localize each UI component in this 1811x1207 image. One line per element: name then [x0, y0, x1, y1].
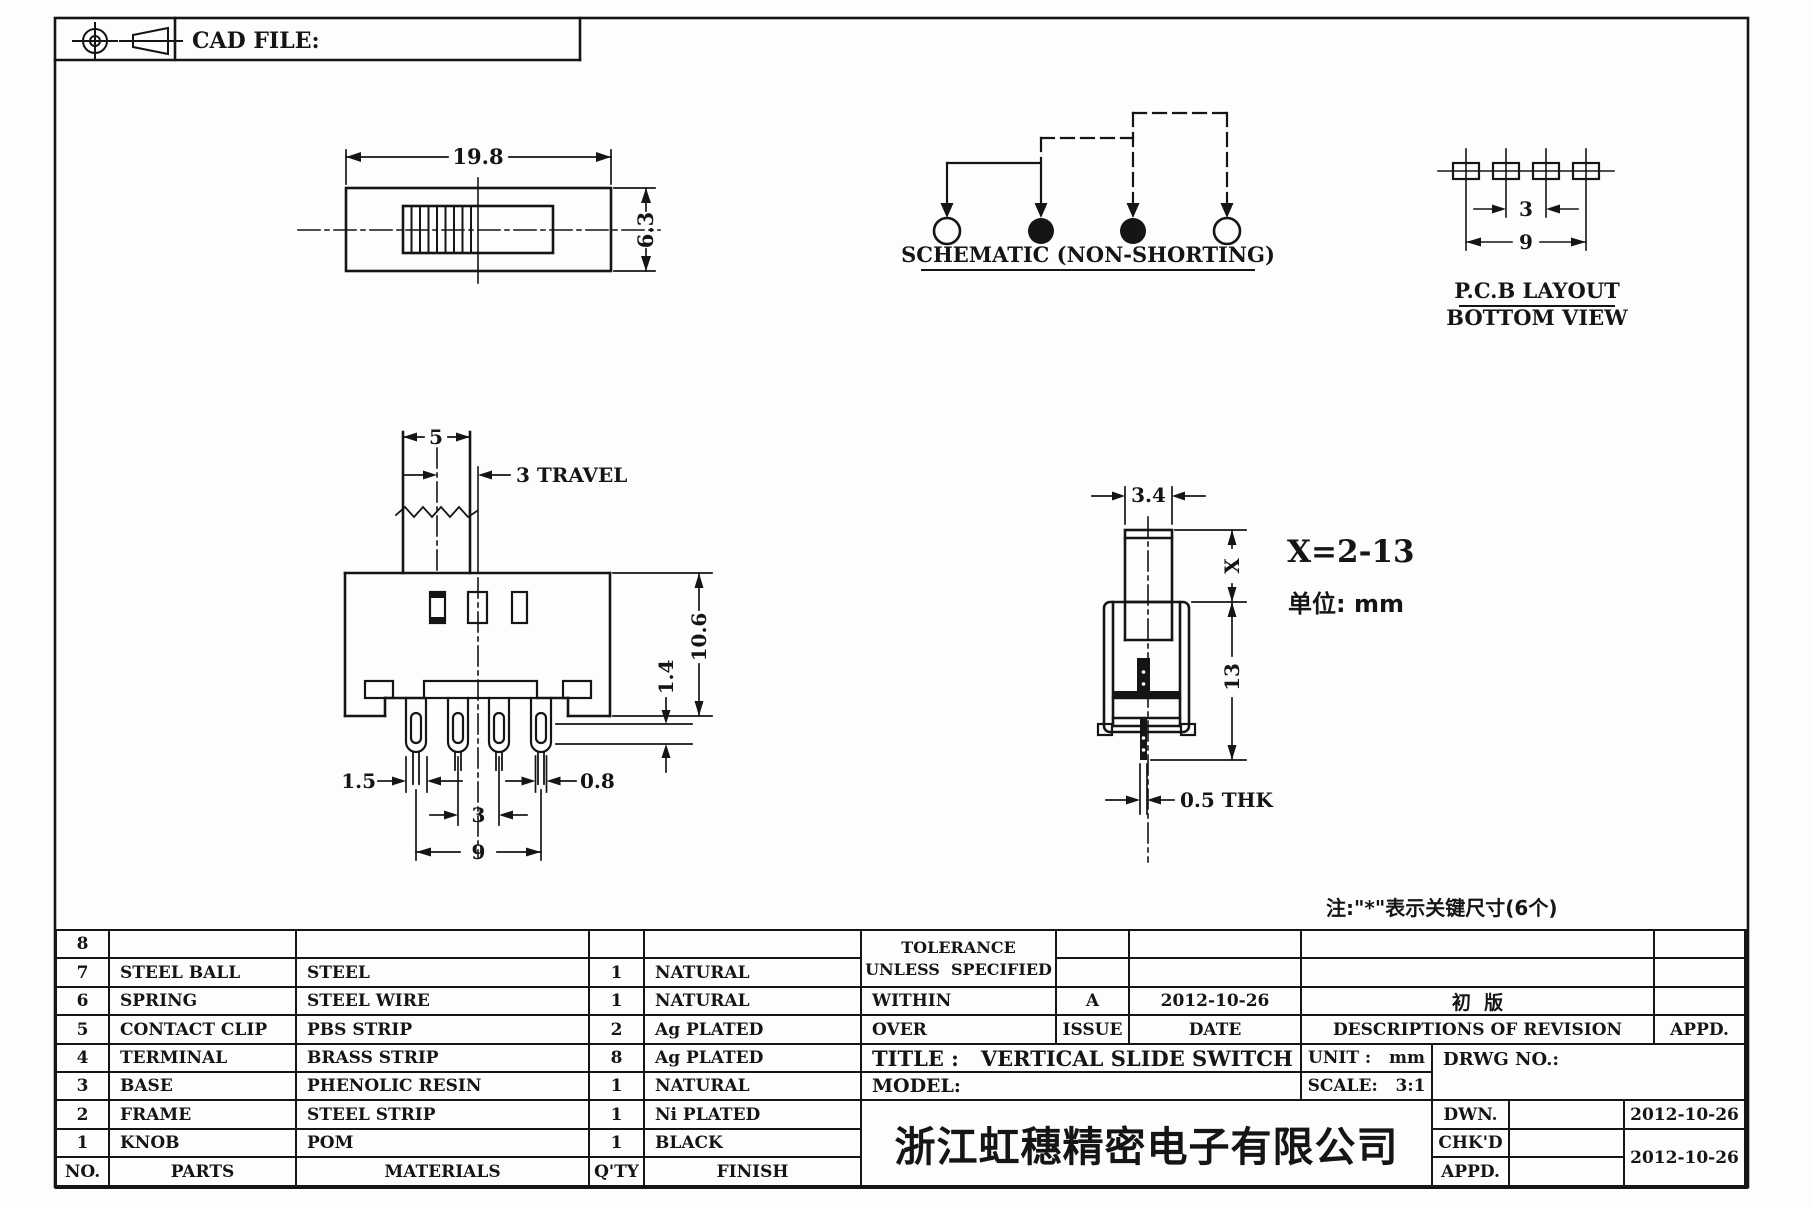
parts-row-qty: 1 — [590, 1130, 645, 1158]
empty-cell — [1130, 931, 1302, 959]
side-height-dim: 13 — [1220, 663, 1244, 691]
parts-row-no: 5 — [57, 1016, 110, 1045]
parts-row-qty: 8 — [590, 1045, 645, 1073]
top-view-height-dim: 6.3 — [633, 212, 658, 249]
drawing-title: TITLE : VERTICAL SLIDE SWITCH — [862, 1045, 1302, 1073]
chkd-label: CHK'D — [1433, 1130, 1510, 1158]
tolerance-line2: UNLESS SPECIFIED — [865, 959, 1052, 981]
model-cell: MODEL: — [862, 1073, 1302, 1101]
parts-header-finish: FINISH — [645, 1158, 862, 1187]
parts-row-finish: Ag PLATED — [645, 1045, 862, 1073]
parts-row-qty: 1 — [590, 1101, 645, 1130]
empty-cell — [1655, 931, 1746, 959]
parts-row-material: PBS STRIP — [297, 1016, 590, 1045]
tolerance-box: TOLERANCE UNLESS SPECIFIED — [862, 931, 1057, 988]
front-pitch-dim: 3 — [472, 803, 486, 827]
front-pin-width-dim: 1.5 — [341, 769, 376, 793]
parts-row-part: CONTACT CLIP — [110, 1016, 297, 1045]
revision-header: DESCRIPTIONS OF REVISION — [1302, 1016, 1655, 1045]
side-view: 3.4 X 13 0.5 THK X=2-13 单位: mm — [1092, 483, 1415, 862]
parts-header-qty: Q'TY — [590, 1158, 645, 1187]
terminal-open-4 — [1214, 218, 1240, 244]
terminal-filled-3 — [1120, 218, 1146, 244]
terminal-filled-2 — [1028, 218, 1054, 244]
side-x-dim: X — [1220, 558, 1244, 574]
parts-row-qty: 1 — [590, 1073, 645, 1101]
parts-row-material: POM — [297, 1130, 590, 1158]
empty-cell — [1302, 931, 1655, 959]
front-pin-thickness-dim: 0.8 — [580, 769, 615, 793]
parts-row-no: 2 — [57, 1101, 110, 1130]
unit-cell: UNIT : mm — [1302, 1045, 1433, 1073]
front-span-dim: 9 — [472, 840, 486, 864]
scale-cell: SCALE: 3:1 — [1302, 1073, 1433, 1101]
parts-row-finish: BLACK — [645, 1130, 862, 1158]
pcb-caption-line2: BOTTOM VIEW — [1446, 305, 1628, 330]
parts-row-material: STEEL — [297, 959, 590, 988]
parts-row-material: PHENOLIC RESIN — [297, 1073, 590, 1101]
front-travel-dim: 3 TRAVEL — [516, 463, 627, 487]
projection-symbol-icon — [73, 23, 182, 59]
empty-cell — [1057, 931, 1130, 959]
parts-row-no: 4 — [57, 1045, 110, 1073]
top-view: 19.8 6.3 — [298, 144, 660, 283]
side-thickness-dim: 0.5 THK — [1180, 788, 1274, 812]
parts-row-material: STEEL WIRE — [297, 988, 590, 1016]
title-block-table: 8 7 STEEL BALL STEEL 1 NATURAL 6 SPRING … — [55, 929, 1748, 1189]
parts-row-part: STEEL BALL — [110, 959, 297, 988]
parts-row-qty: 1 — [590, 959, 645, 988]
parts-row-finish — [645, 931, 862, 959]
parts-header-no: NO. — [57, 1158, 110, 1187]
parts-row-finish: NATURAL — [645, 1073, 862, 1101]
parts-row-no: 3 — [57, 1073, 110, 1101]
parts-row-part — [110, 931, 297, 959]
parts-row-finish: Ag PLATED — [645, 1016, 862, 1045]
tolerance-over-label: OVER — [862, 1016, 1057, 1045]
chkd-name-cell — [1510, 1130, 1625, 1158]
parts-header-parts: PARTS — [110, 1158, 297, 1187]
parts-row-part: TERMINAL — [110, 1045, 297, 1073]
revision-description: 初 版 — [1302, 988, 1655, 1016]
parts-row-part: FRAME — [110, 1101, 297, 1130]
x-range-note: X=2-13 — [1287, 534, 1415, 570]
empty-cell — [1302, 959, 1655, 988]
dwn-date: 2012-10-26 — [1625, 1101, 1746, 1130]
appd-header: APPD. — [1655, 1016, 1746, 1045]
issue-value: A — [1057, 988, 1130, 1016]
parts-row-finish: NATURAL — [645, 959, 862, 988]
empty-cell — [1057, 959, 1130, 988]
pcb-pitch-dim: 3 — [1519, 197, 1533, 221]
empty-cell — [1130, 959, 1302, 988]
empty-cell — [1655, 988, 1746, 1016]
parts-row-qty: 1 — [590, 988, 645, 1016]
front-step-dim: 1.4 — [654, 660, 678, 695]
schematic-caption: SCHEMATIC (NON-SHORTING) — [901, 242, 1275, 267]
tolerance-line1: TOLERANCE — [901, 937, 1016, 959]
key-dimension-note: 注:"*"表示关键尺寸(6个) — [1326, 896, 1558, 920]
cad-file-label: CAD FILE: — [192, 28, 320, 54]
terminal-open-1 — [934, 218, 960, 244]
chkd-date: 2012-10-26 — [1625, 1130, 1746, 1187]
parts-header-materials: MATERIALS — [297, 1158, 590, 1187]
parts-row-material: BRASS STRIP — [297, 1045, 590, 1073]
date-header: DATE — [1130, 1016, 1302, 1045]
parts-row-no: 7 — [57, 959, 110, 988]
parts-row-part: SPRING — [110, 988, 297, 1016]
engineering-drawing-page: CAD FILE: 19.8 6.3 — [0, 0, 1811, 1207]
pcb-layout-view: 3 9 P.C.B LAYOUT BOTTOM VIEW — [1438, 149, 1628, 330]
parts-row-part: BASE — [110, 1073, 297, 1101]
pcb-span-dim: 9 — [1519, 230, 1533, 254]
drawing-number-cell: DRWG NO.: — [1433, 1045, 1746, 1101]
appd-name-cell — [1510, 1158, 1625, 1187]
top-view-width-dim: 19.8 — [452, 144, 503, 169]
side-knob-width-dim: 3.4 — [1131, 483, 1166, 507]
front-knob-width-dim: 5 — [429, 425, 443, 449]
tolerance-within-label: WITHIN — [862, 988, 1057, 1016]
front-height-dim: 10.6 — [687, 613, 711, 662]
parts-row-material: STEEL STRIP — [297, 1101, 590, 1130]
pcb-caption-line1: P.C.B LAYOUT — [1454, 278, 1620, 303]
parts-row-no: 1 — [57, 1130, 110, 1158]
appd-label: APPD. — [1433, 1158, 1510, 1187]
parts-row-finish: Ni PLATED — [645, 1101, 862, 1130]
front-view: 5 3 TRAVEL 10.6 1.4 1.5 0.8 3 9 — [341, 425, 712, 864]
dwn-name-cell — [1510, 1101, 1625, 1130]
revision-date-value: 2012-10-26 — [1130, 988, 1302, 1016]
unit-note: 单位: mm — [1288, 590, 1404, 618]
parts-row-material — [297, 931, 590, 959]
parts-row-finish: NATURAL — [645, 988, 862, 1016]
parts-row-qty — [590, 931, 645, 959]
parts-row-qty: 2 — [590, 1016, 645, 1045]
parts-row-no: 6 — [57, 988, 110, 1016]
parts-row-no: 8 — [57, 931, 110, 959]
schematic-view: SCHEMATIC (NON-SHORTING) — [901, 113, 1275, 270]
empty-cell — [1655, 959, 1746, 988]
company-name: 浙江虹穗精密电子有限公司 — [862, 1101, 1433, 1187]
dwn-label: DWN. — [1433, 1101, 1510, 1130]
parts-row-part: KNOB — [110, 1130, 297, 1158]
issue-header: ISSUE — [1057, 1016, 1130, 1045]
